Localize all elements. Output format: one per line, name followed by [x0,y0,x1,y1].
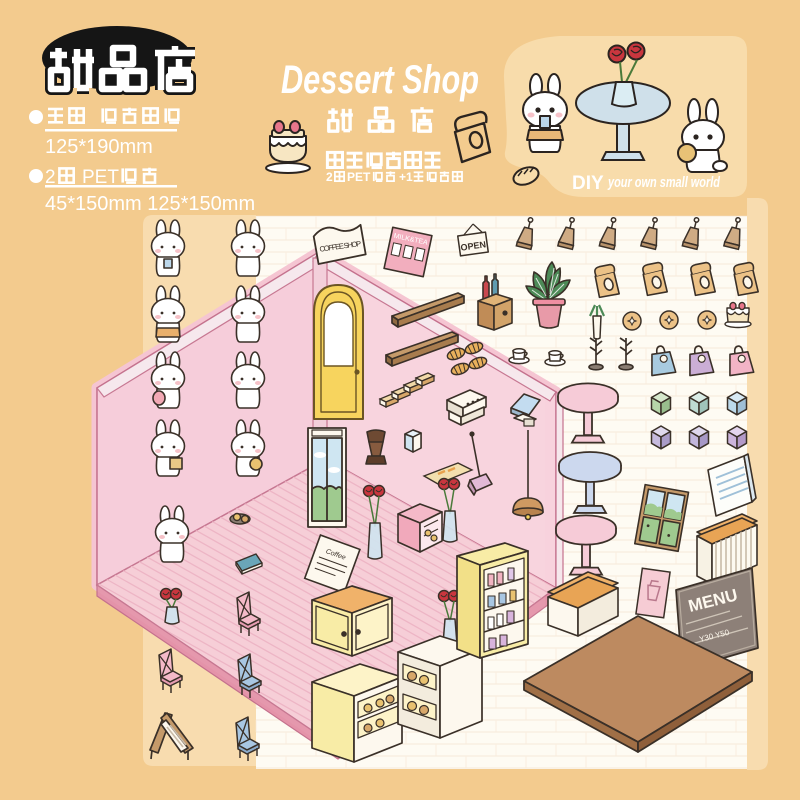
svg-text:DIY: DIY [572,173,604,194]
svg-text:Dessert Shop: Dessert Shop [281,58,479,102]
svg-text:your own small world: your own small world [607,175,721,191]
svg-text:125*190mm: 125*190mm [45,136,153,158]
svg-text:PET: PET [82,167,119,188]
svg-text:2: 2 [45,167,56,188]
svg-text:+1: +1 [399,170,413,184]
svg-text:45*150mm 125*150mm: 45*150mm 125*150mm [45,193,255,215]
svg-text:2: 2 [326,170,333,184]
svg-text:PET: PET [347,170,371,184]
